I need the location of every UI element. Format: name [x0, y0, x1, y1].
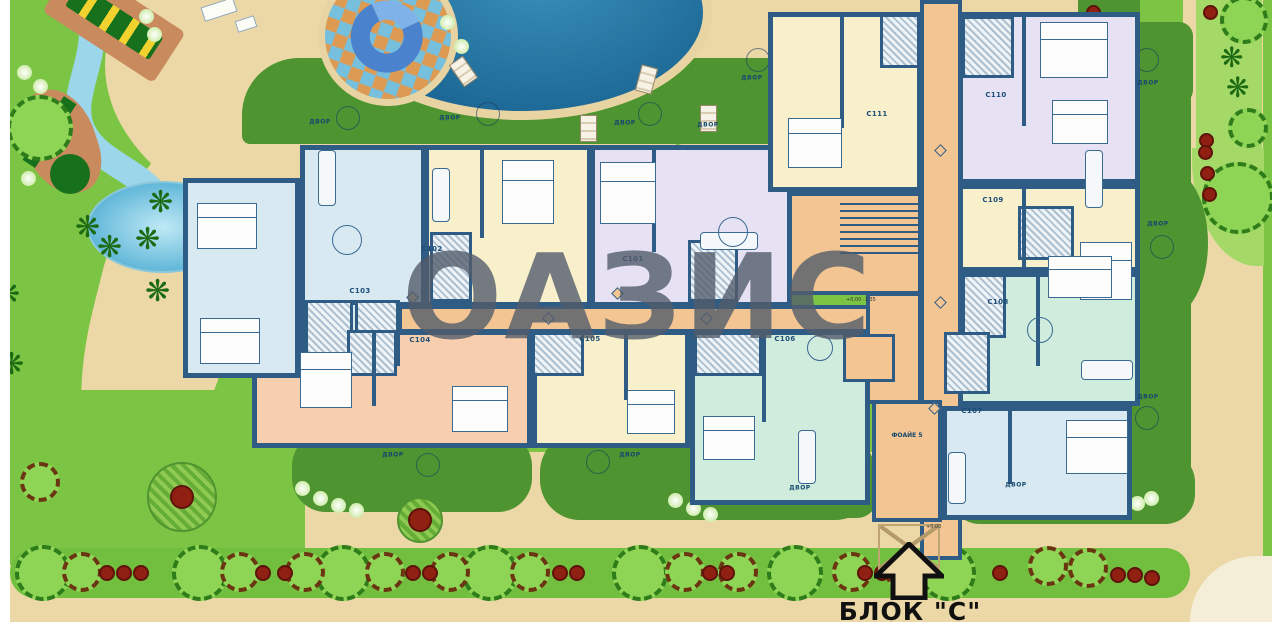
- yard-label: ДВОР: [697, 122, 718, 129]
- yard-label: ДВОР: [741, 75, 762, 82]
- palm-tree-icon: ❋: [135, 225, 165, 255]
- bathroom: [962, 16, 1014, 78]
- bed-icon: [703, 416, 755, 460]
- yard-label: ДВОР: [382, 452, 403, 459]
- bush-icon: [116, 565, 132, 581]
- bush-icon: [405, 565, 421, 581]
- bed-pillow: [201, 319, 259, 333]
- level-mark: +0.00: [926, 524, 941, 530]
- bed-icon: [197, 203, 257, 249]
- site-plan: ОАЗИС ФОАЙЕ 5 БЛОК "С" ❋❋❋❋❋❋❋❋❋❋C103C10…: [0, 0, 1280, 633]
- interior-wall: [372, 332, 376, 406]
- sofa-icon: [318, 150, 336, 206]
- bed-pillow: [198, 204, 256, 218]
- tree-icon: [1028, 546, 1068, 586]
- bed-pillow: [1041, 23, 1107, 40]
- bed-icon: [1052, 100, 1108, 144]
- table-icon: [1027, 317, 1053, 343]
- room-code: C108: [987, 298, 1008, 306]
- yard-label: ДВОР: [1005, 482, 1026, 489]
- interior-wall: [1022, 186, 1026, 270]
- palm-tree-icon: ❋: [97, 233, 127, 263]
- shrub-icon: [17, 65, 32, 80]
- bush-icon: [857, 565, 873, 581]
- bush-icon: [1200, 166, 1215, 181]
- bathroom: [880, 14, 920, 68]
- sun-lounger-icon: [580, 115, 597, 142]
- bed-pillow: [601, 163, 655, 182]
- interior-wall: [1008, 408, 1012, 484]
- palm-tree-icon: ❋: [148, 188, 178, 218]
- bed-pillow: [1049, 257, 1111, 270]
- bed-icon: [452, 386, 508, 432]
- bush-icon: [133, 565, 149, 581]
- room-code: C110: [985, 91, 1006, 99]
- bush-icon: [552, 565, 568, 581]
- shrub-icon: [313, 491, 328, 506]
- bush-icon: [702, 565, 718, 581]
- sofa-icon: [1081, 360, 1133, 380]
- yard-label: ДВОР: [614, 120, 635, 127]
- shrub-icon: [295, 481, 310, 496]
- patio-table-icon: [746, 48, 770, 72]
- tree-icon: [1068, 548, 1108, 588]
- shrub-icon: [349, 503, 364, 518]
- room-code: C103: [349, 287, 370, 295]
- patio-table-icon: [476, 102, 500, 126]
- room-code: C109: [982, 196, 1003, 204]
- bed-pillow: [1067, 421, 1127, 438]
- bed-pillow: [453, 387, 507, 401]
- room-code: C111: [866, 110, 887, 118]
- shrub-icon: [331, 498, 346, 513]
- bush-icon: [1202, 187, 1217, 202]
- bathroom: [962, 274, 1006, 338]
- sofa-icon: [948, 452, 966, 504]
- palm-tree-icon: ❋: [1220, 44, 1248, 72]
- bed-icon: [1040, 22, 1108, 78]
- palm-tree-icon: ❋: [145, 277, 175, 307]
- interior-wall: [840, 14, 844, 128]
- patio-table-icon: [416, 453, 440, 477]
- bush-icon: [255, 565, 271, 581]
- yard-label: ДВОР: [1147, 221, 1168, 228]
- tree-icon: [665, 552, 705, 592]
- bathroom: [1018, 206, 1074, 260]
- shrub-circle-icon: [147, 462, 217, 532]
- shrub-circle-icon: [397, 497, 443, 543]
- yard-label: ДВОР: [619, 452, 640, 459]
- playground-roundabout: [50, 154, 90, 194]
- tree-icon: [612, 545, 668, 601]
- shrub-icon: [21, 171, 36, 186]
- tree-icon: [62, 552, 102, 592]
- tree-icon: [7, 95, 73, 161]
- bed-icon: [788, 118, 842, 168]
- patio-table-icon: [1135, 406, 1159, 430]
- tree-icon: [220, 552, 260, 592]
- bed-icon: [1048, 256, 1112, 298]
- interior-wall: [1022, 14, 1026, 126]
- bush-icon: [569, 565, 585, 581]
- patio-table-icon: [586, 450, 610, 474]
- bed-pillow: [301, 353, 351, 370]
- bush-icon: [1203, 5, 1218, 20]
- bush-icon: [170, 485, 194, 509]
- bed-icon: [627, 390, 675, 434]
- yard-label: ДВОР: [1137, 80, 1158, 87]
- patio-table-icon: [336, 106, 360, 130]
- yard-label: ДВОР: [309, 119, 330, 126]
- shrub-icon: [147, 27, 162, 42]
- sofa-icon: [1085, 150, 1103, 208]
- bed-icon: [1066, 420, 1128, 474]
- shrub-icon: [33, 79, 48, 94]
- bed-icon: [200, 318, 260, 364]
- foyer: [872, 400, 942, 522]
- patio-table-icon: [1150, 235, 1174, 259]
- shrub-icon: [454, 39, 469, 54]
- bush-icon: [992, 565, 1008, 581]
- bush-icon: [408, 508, 432, 532]
- bed-pillow: [628, 391, 674, 405]
- page-margin: [0, 622, 1280, 633]
- bed-pillow: [1053, 101, 1107, 115]
- tree-icon: [365, 552, 405, 592]
- tree-icon: [1228, 108, 1268, 148]
- bush-icon: [1144, 570, 1160, 586]
- bed-pillow: [503, 161, 553, 181]
- tree-icon: [20, 462, 60, 502]
- palm-tree-icon: ❋: [1226, 74, 1254, 102]
- bush-icon: [1127, 567, 1143, 583]
- page-margin: [0, 0, 10, 633]
- room-code: C107: [961, 407, 982, 415]
- yard-label: ДВОР: [439, 115, 460, 122]
- tree-icon: [767, 545, 823, 601]
- bed-pillow: [789, 119, 841, 134]
- bed-icon: [502, 160, 554, 224]
- yard-label: ДВОР: [1137, 394, 1158, 401]
- entrance-arrow-icon: [874, 542, 944, 600]
- bed-icon: [300, 352, 352, 408]
- shrub-icon: [1144, 491, 1159, 506]
- bed-pillow: [704, 417, 754, 431]
- bush-icon: [277, 565, 293, 581]
- bathroom: [944, 332, 990, 394]
- bush-icon: [422, 565, 438, 581]
- tree-icon: [510, 552, 550, 592]
- patio-table-icon: [638, 102, 662, 126]
- bush-icon: [1198, 145, 1213, 160]
- shrub-icon: [703, 507, 718, 522]
- interior-wall: [480, 148, 484, 238]
- watermark: ОАЗИС: [402, 238, 873, 356]
- water-slide-icon: [341, 0, 433, 83]
- table-icon: [332, 225, 362, 255]
- shrub-icon: [440, 15, 455, 30]
- foyer-label: ФОАЙЕ 5: [872, 432, 942, 439]
- bush-icon: [99, 565, 115, 581]
- sofa-icon: [798, 430, 816, 484]
- sofa-icon: [432, 168, 450, 222]
- yard-label: ДВОР: [789, 485, 810, 492]
- interior-wall: [300, 182, 304, 304]
- bed-icon: [600, 162, 656, 224]
- bush-icon: [719, 565, 735, 581]
- shrub-icon: [139, 9, 154, 24]
- shrub-icon: [668, 493, 683, 508]
- bush-icon: [1110, 567, 1126, 583]
- page-margin: [1272, 0, 1280, 633]
